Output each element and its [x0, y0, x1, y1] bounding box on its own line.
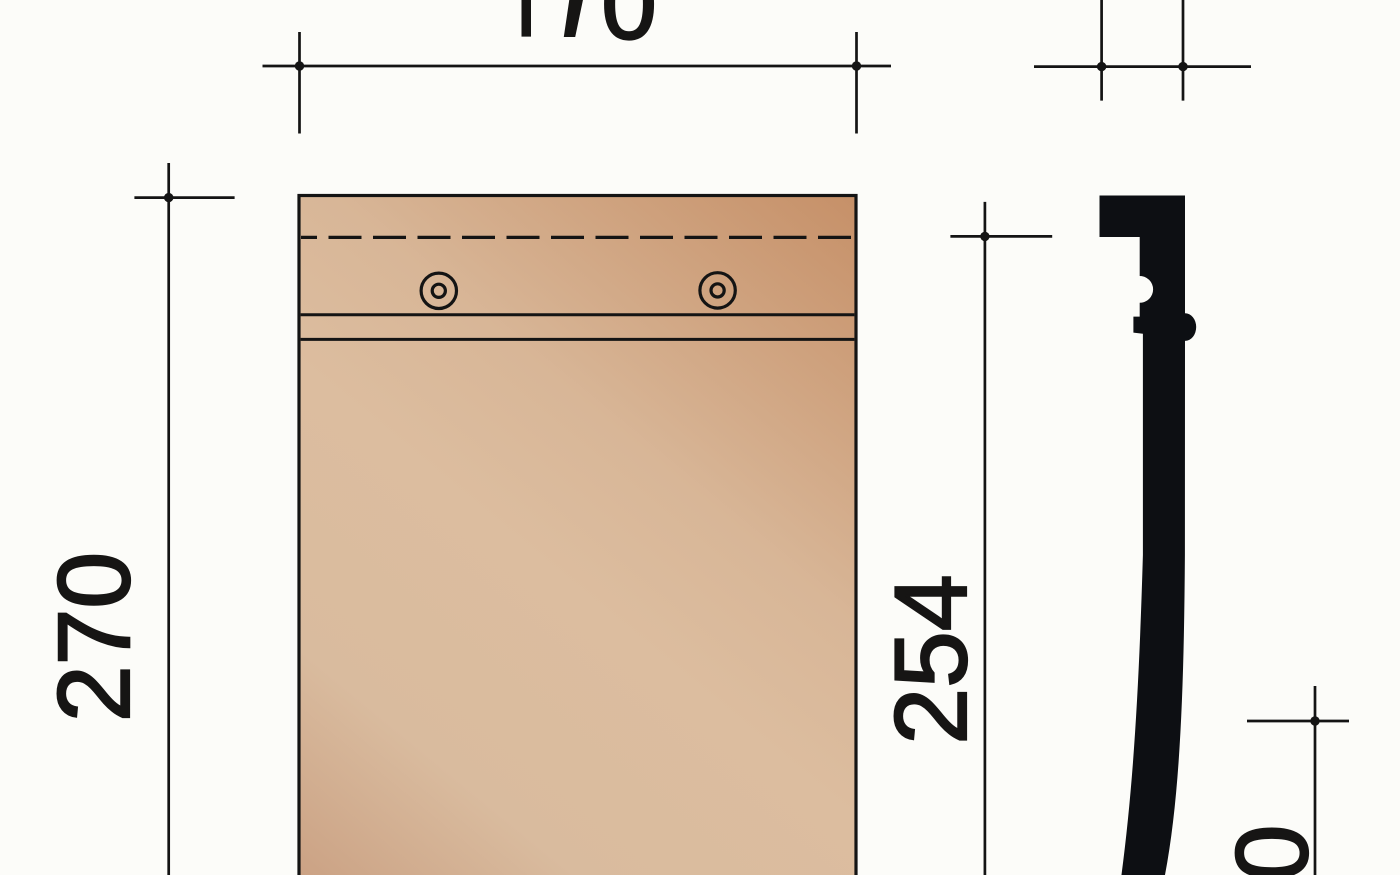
- svg-text:0: 0: [1215, 825, 1329, 875]
- svg-text:270: 270: [37, 552, 151, 722]
- svg-text:254: 254: [874, 574, 988, 744]
- svg-text:0: 0: [601, 0, 657, 61]
